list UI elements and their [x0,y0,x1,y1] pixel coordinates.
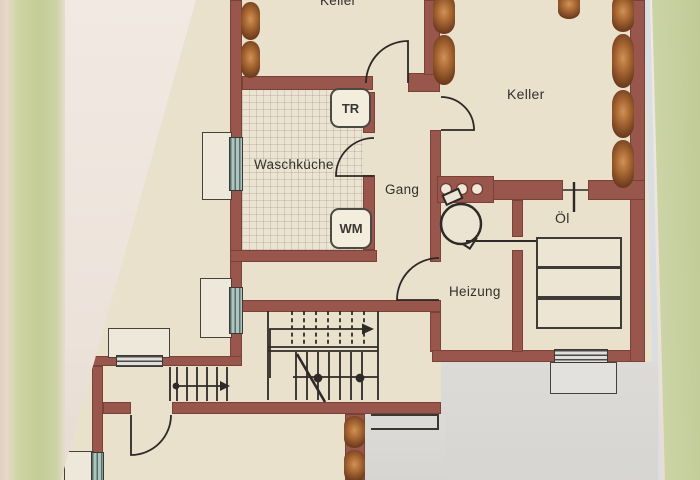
window [230,288,242,333]
window [92,453,103,480]
main-staircase [268,311,378,402]
wall-segment [92,366,103,453]
oil-tank [536,298,622,329]
wall-segment [103,402,131,414]
reflection-artifact [433,35,455,85]
room-label-oel: Öl [555,210,570,226]
door-arc [131,415,171,455]
door-opening-symbol [563,182,588,212]
window [230,138,242,190]
reflection-artifact [344,416,365,448]
window [555,350,607,362]
reflection-artifact [433,0,455,34]
reflection-artifact [241,2,260,40]
room-label-waschkueche: Waschküche [254,157,334,172]
plan-paper-sheet: TR WM [0,0,700,480]
room-label-keller-right: Keller [507,86,545,102]
wall-segment [512,250,523,352]
oil-tank [536,237,622,268]
wall-segment [430,312,441,352]
floor-plan-photo: TR WM [0,0,700,480]
room-label-keller-top: Keller [320,0,356,8]
reflection-artifact [612,140,634,188]
dryer-box: TR [330,88,371,128]
room-label-heizung: Heizung [449,284,501,299]
green-wall-stripe [8,0,65,480]
room-label-gang: Gang [385,182,419,197]
wall-segment [230,250,377,262]
dryer-label: TR [342,101,359,116]
washer-label: WM [339,221,362,236]
door-arc [397,258,439,300]
window [117,356,162,366]
wall-segment [432,350,555,362]
chimney-block [437,176,494,203]
reflection-artifact [241,41,260,78]
reflection-artifact [612,0,634,32]
entry-stair-arrowhead [220,381,230,391]
reflection-artifact [612,34,634,88]
wall-segment [242,300,441,312]
wall-segment [172,402,441,414]
reflection-artifact [558,0,580,19]
reflection-artifact [612,90,634,138]
light-well [550,362,617,394]
light-well [200,278,232,338]
exterior-step-lines [371,414,439,430]
wall-segment [162,356,242,366]
wall-segment [512,200,523,237]
light-well [64,451,94,480]
oil-tank [536,267,622,298]
light-well [108,328,170,358]
light-well [202,132,232,200]
oil-tanks [536,237,622,330]
door-arc [441,97,474,130]
washer-box: WM [330,208,372,249]
reflection-artifact [344,450,365,480]
stair-direction-arrow [270,324,374,379]
entry-staircase [170,367,227,401]
